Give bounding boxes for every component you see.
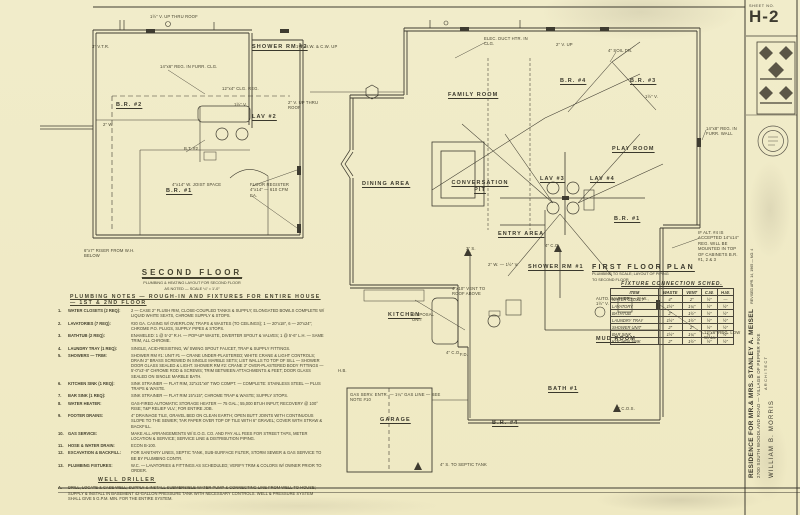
fixture-table-row: KITCHEN SINK2″1½″½″½″ xyxy=(611,338,734,345)
architect-role: ARCHITECT xyxy=(764,226,768,390)
fixture-size-cell: ½″ xyxy=(701,310,717,317)
fixture-table-row: LAUNDRY TRAY1½″1½″½″½″ xyxy=(611,317,734,324)
room-label-conversation-pit: CONVERSATION PIT xyxy=(450,180,510,194)
note-number: 11. xyxy=(58,443,65,448)
fixture-size-cell: 2″ xyxy=(658,310,682,317)
fixture-size-cell: 2″ xyxy=(658,338,682,345)
fixture-size-cell: ½″ xyxy=(701,324,717,331)
room-label-br-1: B.R. #1 xyxy=(614,216,640,222)
title-block: RESIDENCE FOR MR.& MRS. STANLEY A. MEISE… xyxy=(748,226,794,478)
note-title: BAR SINK (1 REQ): xyxy=(68,393,128,398)
note-number: 3. xyxy=(58,333,65,343)
room-label-entry-area: ENTRY AREA xyxy=(498,231,544,237)
fixture-size-cell: 2″ xyxy=(658,324,682,331)
note-number: 5. xyxy=(58,353,65,379)
fixture-table-row: WATER CLOSET4″2″½″— xyxy=(611,296,734,303)
note-number: 4. xyxy=(58,346,65,351)
ornamental-stamp-icon xyxy=(757,42,795,114)
fixture-table-row: BATHTUB2″1½″½″½″ xyxy=(611,310,734,317)
pipe-callout: ELEC. DUCT HTR. IN CLG. xyxy=(484,36,536,47)
room-label-br-2: B.R. #2 xyxy=(116,102,142,108)
room-label-garage: GARAGE xyxy=(380,417,411,423)
note-body: SINGLE, ACID-RESISTING, W/ SWING SPOUT F… xyxy=(131,346,326,351)
fixture-size-cell: 4″ xyxy=(658,296,682,303)
note-body: DRILL, LOCATE & CASE WELL; SUPPLY & INST… xyxy=(68,485,326,501)
fixture-size-cell: ½″ xyxy=(717,317,733,324)
plumbing-note-item: A.DRILL, LOCATE & CASE WELL; SUPPLY & IN… xyxy=(58,485,326,501)
first-floor-subtitle-1: PLUMBING TO SCALE; LAYOUT OF PIPING xyxy=(592,272,722,277)
blueprint-sheet: SHOWER RM #2 LAV #2 B.R. #2 B.R. #1 FAMI… xyxy=(0,0,800,515)
note-body: W.C. — LAVATORIES & FITTINGS AS SCHEDULE… xyxy=(131,463,326,473)
note-title: LAVATORIES (7 REQ): xyxy=(68,321,128,331)
note-title: PLUMBING FIXTURES: xyxy=(68,463,128,473)
fixture-size-cell: 1¼″ xyxy=(682,331,701,338)
room-label-lav-3: LAV #3 xyxy=(540,176,565,182)
sheet-number: H-2 xyxy=(749,8,795,25)
first-floor-title: FIRST FLOOR PLAN xyxy=(592,264,722,271)
fixture-size-cell: 1½″ xyxy=(658,317,682,324)
fixture-table-header: C.W. xyxy=(701,289,717,296)
fixture-size-cell: 1½″ xyxy=(682,317,701,324)
fixture-size-cell: ½″ xyxy=(701,296,717,303)
second-floor-subtitle-2: AS NOTED — SCALE ¼″ = 1′-0″ xyxy=(58,287,326,292)
pipe-callout: H.B. xyxy=(338,368,352,373)
pipe-callout: 4″x10″ VENT TO ROOF ABOVE xyxy=(452,286,498,297)
fixture-table-row: LAVATORY1½″1¼″½″½″ xyxy=(611,303,734,310)
note-number: 8. xyxy=(58,401,65,411)
room-label-family-room: FAMILY ROOM xyxy=(448,92,498,98)
plumbing-note-item: 2.LAVATORIES (7 REQ):#20 GA. CASING W/ O… xyxy=(58,321,326,331)
plumbing-note-item: 13.PLUMBING FIXTURES:W.C. — LAVATORIES &… xyxy=(58,463,326,473)
pipe-callout: IF ALT. #4 IS ACCEPTED 14″x14″ REG. WILL… xyxy=(698,230,742,263)
pipe-callout: 2″ V. UP xyxy=(556,42,580,47)
fixture-item-cell: WATER CLOSET xyxy=(611,296,659,303)
pipe-callout: 2″ V. UP THRU ROOF xyxy=(288,100,328,111)
note-body: 4″ DRAINAGE TILE, GRAVEL BED ON CLEAN EA… xyxy=(131,413,326,429)
note-number: 13. xyxy=(58,463,65,473)
pipe-callout: FLOOR REGISTER 4″x14″ — 610 CFM EA. xyxy=(250,182,296,198)
fixture-size-cell: ½″ xyxy=(701,331,717,338)
pipe-callout: 4″ C.O. xyxy=(545,243,565,248)
pipe-callout: 2″ W. xyxy=(103,122,123,127)
well-driller-heading: WELL DRILLER xyxy=(98,477,326,483)
plumbing-note-item: 12.EXCAVATION & BACKFILL:FOR SANITARY LI… xyxy=(58,450,326,460)
note-number: 10. xyxy=(58,431,65,441)
pipe-callout: 3″ V.T.R. xyxy=(92,44,118,49)
note-number: 7. xyxy=(58,393,65,398)
architect-name: WILLIAM B. MORRIS xyxy=(769,226,775,478)
fixture-size-cell: ½″ xyxy=(717,338,733,345)
fixture-size-cell: ½″ xyxy=(717,303,733,310)
fixture-table: ITEMWASTEVENTC.W.H.W. WATER CLOSET4″2″½″… xyxy=(610,288,734,345)
fixture-item-cell: BAR SINK xyxy=(611,331,659,338)
fixture-item-cell: KITCHEN SINK xyxy=(611,338,659,345)
plumbing-note-item: 9.FOOTER DRAINS:4″ DRAINAGE TILE, GRAVEL… xyxy=(58,413,326,429)
fixture-item-cell: SHOWER UNIT xyxy=(611,324,659,331)
fixture-size-cell: — xyxy=(717,296,733,303)
pipe-callout: 1½″ V. xyxy=(645,94,665,99)
note-body: SHOWER RM #1: UNIT #1 — CRANE UNDER-PLAS… xyxy=(131,353,326,379)
fixture-connection-schedule: FIXTURE CONNECTION SCHED. ITEMWASTEVENTC… xyxy=(610,281,734,345)
note-body: ENAMELED: 1 @ 5′-2″ R.H. — POP-UP WASTE,… xyxy=(131,333,326,343)
plumbing-note-item: 5.SHOWERS — TRIM:SHOWER RM #1: UNIT #1 —… xyxy=(58,353,326,379)
note-title: SHOWERS — TRIM: xyxy=(68,353,128,379)
room-label-br-4-wing: B.R. #4 xyxy=(492,420,518,426)
pipe-callout: 1½″ V. UP THRU ROOF xyxy=(150,14,210,19)
fixture-item-cell: LAUNDRY TRAY xyxy=(611,317,659,324)
first-floor-plan xyxy=(310,20,706,472)
plumbing-notes-block: SECOND FLOOR PLUMBING & HEATING LAYOUT F… xyxy=(58,262,326,503)
pipe-callout: B.T. #2 xyxy=(184,146,208,151)
fixture-size-cell: ½″ xyxy=(701,303,717,310)
fixture-table-header: WASTE xyxy=(658,289,682,296)
room-label-dining-area: DINING AREA xyxy=(362,181,410,187)
sheet-number-block: SHEET NO. H-2 xyxy=(749,4,795,25)
room-label-br-4: B.R. #4 xyxy=(560,78,586,84)
fixture-table-header: ITEM xyxy=(611,289,659,296)
room-label-lav-2: LAV #2 xyxy=(252,114,277,120)
note-body: SINK STRAINER — FLAT RIM 15″x15″; CHROME… xyxy=(131,393,326,398)
note-number: 1. xyxy=(58,308,65,318)
fixture-table-row: SHOWER UNIT2″2″½″½″ xyxy=(611,324,734,331)
plumbing-notes-list: 1.WATER CLOSETS (2 REQ):2 — CASE 2″ FLUS… xyxy=(58,308,326,473)
fixture-size-cell: ½″ xyxy=(701,338,717,345)
pipe-callout: DISPOSAL UNIT xyxy=(412,312,444,323)
plumbing-note-item: 10.GAS SERVICE:MAKE ALL ARRANGEMENTS W/ … xyxy=(58,431,326,441)
note-number: 6. xyxy=(58,381,65,391)
fixture-size-cell: 2″ xyxy=(682,324,701,331)
room-label-shower-rm-1: SHOWER RM #1 xyxy=(528,264,584,270)
note-number: 12. xyxy=(58,450,65,460)
note-body: MAKE ALL ARRANGEMENTS W/ E.O.G. CO. AND … xyxy=(131,431,326,441)
second-floor-subtitle-1: PLUMBING & HEATING LAYOUT FOR SECOND FLO… xyxy=(58,281,326,286)
plumbing-note-item: 7.BAR SINK (1 REQ):SINK STRAINER — FLAT … xyxy=(58,393,326,398)
fixture-size-cell: ½″ xyxy=(717,331,733,338)
plumbing-note-item: 8.WATER HEATER:GAS-FIRED AUTOMATIC STORA… xyxy=(58,401,326,411)
fixture-item-cell: BATHTUB xyxy=(611,310,659,317)
plumbing-note-item: 3.BATHTUB (2 REQ):ENAMELED: 1 @ 5′-2″ R.… xyxy=(58,333,326,343)
note-number: 2. xyxy=(58,321,65,331)
second-floor-title: SECOND FLOOR xyxy=(142,268,242,279)
fixture-size-cell: ½″ xyxy=(717,310,733,317)
fixture-table-row: BAR SINK1½″1¼″½″½″ xyxy=(611,331,734,338)
note-title: HOSE & WATER DRAIN: xyxy=(68,443,128,448)
pipe-callout: 4″ C.O.S. xyxy=(616,406,642,411)
fixture-table-header: H.W. xyxy=(717,289,733,296)
fixture-size-cell: 1¼″ xyxy=(682,303,701,310)
note-body: #20 GA. CASING W/ OVERFLOW, TRAPS & WAST… xyxy=(131,321,326,331)
fixture-size-cell: 1½″ xyxy=(658,331,682,338)
fixture-item-cell: LAVATORY xyxy=(611,303,659,310)
plumbing-notes-heading: PLUMBING NOTES — ROUGH-IN AND FIXTURES F… xyxy=(70,294,326,306)
pipe-callout: 4″ S. TO SEPTIC TANK xyxy=(440,462,502,467)
note-title: EXCAVATION & BACKFILL: xyxy=(68,450,128,460)
room-label-br-3: B.R. #3 xyxy=(630,78,656,84)
pipe-callout: 4″x14″ W. JOIST SPACE xyxy=(172,182,224,187)
fixture-size-cell: 2″ xyxy=(682,296,701,303)
note-title: WATER HEATER: xyxy=(68,401,128,411)
pipe-callout: 12″x4″ CLG. REG. xyxy=(222,86,262,91)
note-number: 9. xyxy=(58,413,65,429)
fixture-size-cell: 1½″ xyxy=(658,303,682,310)
second-floor-plan xyxy=(40,20,303,238)
note-title: LAUNDRY TRAY (1 REQ): xyxy=(68,346,128,351)
plumbing-note-item: 1.WATER CLOSETS (2 REQ):2 — CASE 2″ FLUS… xyxy=(58,308,326,318)
fixture-table-title: FIXTURE CONNECTION SCHED. xyxy=(610,281,734,287)
note-body: GAS-FIRED AUTOMATIC STORAGE HEATER — 75 … xyxy=(131,401,326,411)
pipe-callout: 2″ W. — 1½″ V. xyxy=(488,262,522,267)
room-label-br-1-second-floor: B.R. #1 xyxy=(166,188,192,194)
project-title: RESIDENCE FOR MR.& MRS. STANLEY A. MEISE… xyxy=(748,309,755,478)
note-title: BATHTUB (2 REQ): xyxy=(68,333,128,343)
well-driller-list: A.DRILL, LOCATE & CASE WELL; SUPPLY & IN… xyxy=(58,485,326,501)
architect-seal-icon xyxy=(758,126,788,156)
pipe-callout: 4″ SOIL DN. xyxy=(608,48,638,53)
fixture-size-cell: 1½″ xyxy=(682,310,701,317)
note-number: A. xyxy=(58,485,65,501)
pipe-callout: 14″x6″ REG. IN FURR. CLG. xyxy=(160,64,218,69)
note-title: KITCHEN SINK (1 REQ): xyxy=(68,381,128,391)
pipe-callout: 6″x7″ RISER FROM W.H. BELOW xyxy=(84,248,138,259)
revision-note: REVISED APR. 14, 1965 — NO. 4 xyxy=(750,249,754,304)
room-label-lav-4: LAV #4 xyxy=(590,176,615,182)
pipe-callout: 4″ C.O. xyxy=(446,350,466,355)
room-label-play-room: PLAY ROOM xyxy=(612,146,655,152)
pipe-callout: 1¼″ H.W. & C.W. UP xyxy=(296,44,338,49)
plumbing-note-item: 6.KITCHEN SINK (1 REQ):SINK STRAINER — F… xyxy=(58,381,326,391)
note-body: ECON B-100. xyxy=(131,443,326,448)
first-floor-title-block: FIRST FLOOR PLAN PLUMBING TO SCALE; LAYO… xyxy=(592,264,722,282)
note-title: FOOTER DRAINS: xyxy=(68,413,128,429)
note-title: WATER CLOSETS (2 REQ): xyxy=(68,308,128,318)
fixture-size-cell: ½″ xyxy=(717,324,733,331)
note-body: FOR SANITARY LINES, SEPTIC TANK, SUB-SUR… xyxy=(131,450,326,460)
fixture-size-cell: ½″ xyxy=(701,317,717,324)
note-body: 2 — CASE 2″ FLUSH RIM, CLOSE-COUPLED TAN… xyxy=(131,308,326,318)
note-title: GAS SERVICE: xyxy=(68,431,128,441)
fixture-size-cell: 1½″ xyxy=(682,338,701,345)
plumbing-note-item: 11.HOSE & WATER DRAIN:ECON B-100. xyxy=(58,443,326,448)
pipe-callout: 3″ S. xyxy=(466,246,484,251)
note-body: SINK STRAINER — FLAT RIM, 32″x21″x8″ TWO… xyxy=(131,381,326,391)
pipe-callout: 1½″ V. xyxy=(234,102,254,107)
pipe-callout: GAS SERV. ENTR. — 1¼″ GAS LINE — SEE NOT… xyxy=(350,392,442,403)
fixture-table-header: VENT xyxy=(682,289,701,296)
plumbing-note-item: 4.LAUNDRY TRAY (1 REQ):SINGLE, ACID-RESI… xyxy=(58,346,326,351)
pipe-callout: 14″x8″ REG. IN FURR. WALL xyxy=(706,126,744,137)
project-address: 2700 SOUTH WOODLAND ROAD — VILLAGE OF PE… xyxy=(756,226,761,478)
room-label-bath-1: BATH #1 xyxy=(548,386,578,392)
